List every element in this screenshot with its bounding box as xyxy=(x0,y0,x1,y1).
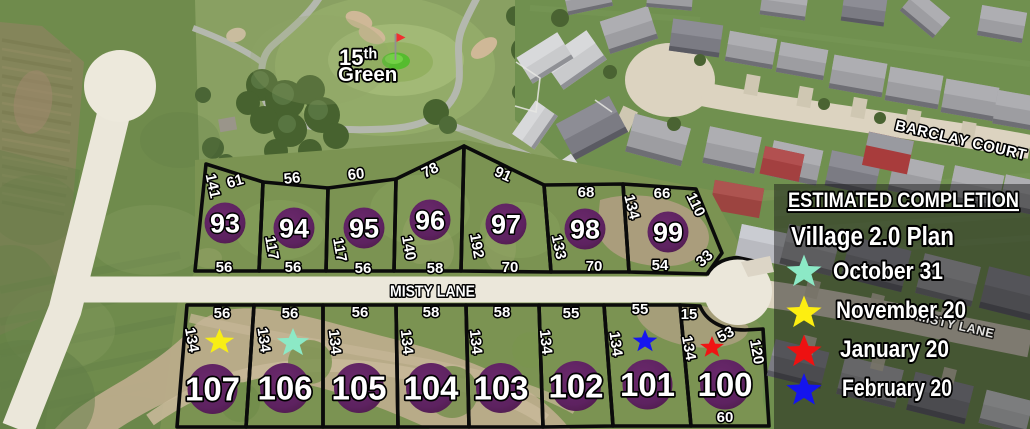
svg-text:56: 56 xyxy=(282,305,299,322)
svg-text:102: 102 xyxy=(548,368,603,405)
svg-text:MISTY LANE: MISTY LANE xyxy=(390,284,475,301)
svg-text:58: 58 xyxy=(494,304,511,321)
svg-text:93: 93 xyxy=(210,209,240,239)
svg-text:134: 134 xyxy=(466,329,486,356)
svg-text:Village 2.0 Plan: Village 2.0 Plan xyxy=(791,223,954,251)
svg-text:134: 134 xyxy=(605,330,625,358)
svg-text:November 20: November 20 xyxy=(836,297,966,324)
svg-text:66: 66 xyxy=(654,185,671,202)
svg-text:60: 60 xyxy=(347,165,365,184)
svg-text:56: 56 xyxy=(352,304,369,321)
svg-text:107: 107 xyxy=(185,371,240,408)
svg-text:54: 54 xyxy=(652,257,669,274)
svg-text:103: 103 xyxy=(473,370,528,407)
svg-text:105: 105 xyxy=(331,370,386,407)
svg-text:October 31: October 31 xyxy=(833,258,943,285)
svg-text:58: 58 xyxy=(423,304,440,321)
svg-text:99: 99 xyxy=(653,218,683,248)
svg-text:134: 134 xyxy=(325,329,345,356)
svg-text:56: 56 xyxy=(214,305,231,322)
svg-text:January 20: January 20 xyxy=(840,336,949,363)
svg-text:56: 56 xyxy=(283,169,301,188)
svg-text:55: 55 xyxy=(563,305,580,322)
svg-text:100: 100 xyxy=(697,366,752,403)
svg-text:134: 134 xyxy=(397,329,417,356)
svg-text:134: 134 xyxy=(253,326,273,354)
svg-text:56: 56 xyxy=(216,259,233,276)
svg-text:96: 96 xyxy=(415,206,445,236)
svg-text:134: 134 xyxy=(536,329,556,356)
svg-text:60: 60 xyxy=(717,409,734,426)
svg-text:ESTIMATED COMPLETION: ESTIMATED COMPLETION xyxy=(788,189,1019,212)
svg-text:94: 94 xyxy=(279,214,309,244)
svg-text:97: 97 xyxy=(491,210,521,240)
svg-text:56: 56 xyxy=(285,259,302,276)
svg-text:55: 55 xyxy=(632,301,649,318)
svg-text:February 20: February 20 xyxy=(842,375,952,402)
svg-text:104: 104 xyxy=(403,370,459,407)
svg-text:Green: Green xyxy=(338,63,397,86)
svg-text:58: 58 xyxy=(427,260,444,277)
svg-text:68: 68 xyxy=(578,184,595,201)
svg-text:15: 15 xyxy=(681,306,698,323)
svg-text:70: 70 xyxy=(502,259,519,276)
svg-text:106: 106 xyxy=(257,370,312,407)
svg-text:101: 101 xyxy=(620,366,675,403)
svg-text:95: 95 xyxy=(349,214,379,244)
svg-text:56: 56 xyxy=(355,260,372,277)
svg-text:70: 70 xyxy=(586,258,603,275)
svg-text:98: 98 xyxy=(570,215,600,245)
